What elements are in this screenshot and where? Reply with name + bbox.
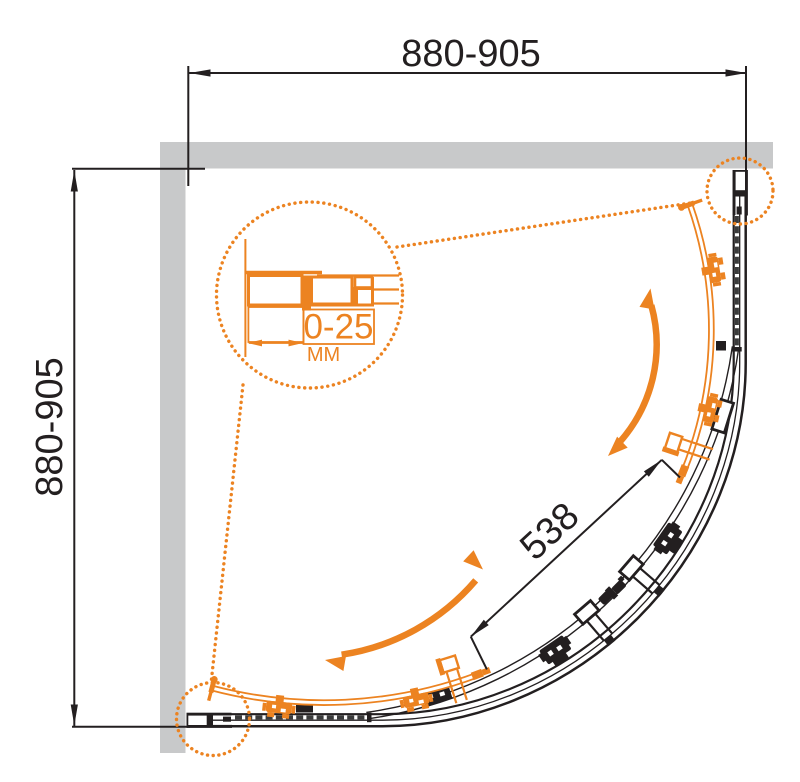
svg-text:0-25: 0-25 [303, 308, 373, 347]
svg-text:880-905: 880-905 [29, 357, 71, 496]
svg-text:MM: MM [307, 344, 340, 366]
svg-text:880-905: 880-905 [401, 33, 540, 75]
